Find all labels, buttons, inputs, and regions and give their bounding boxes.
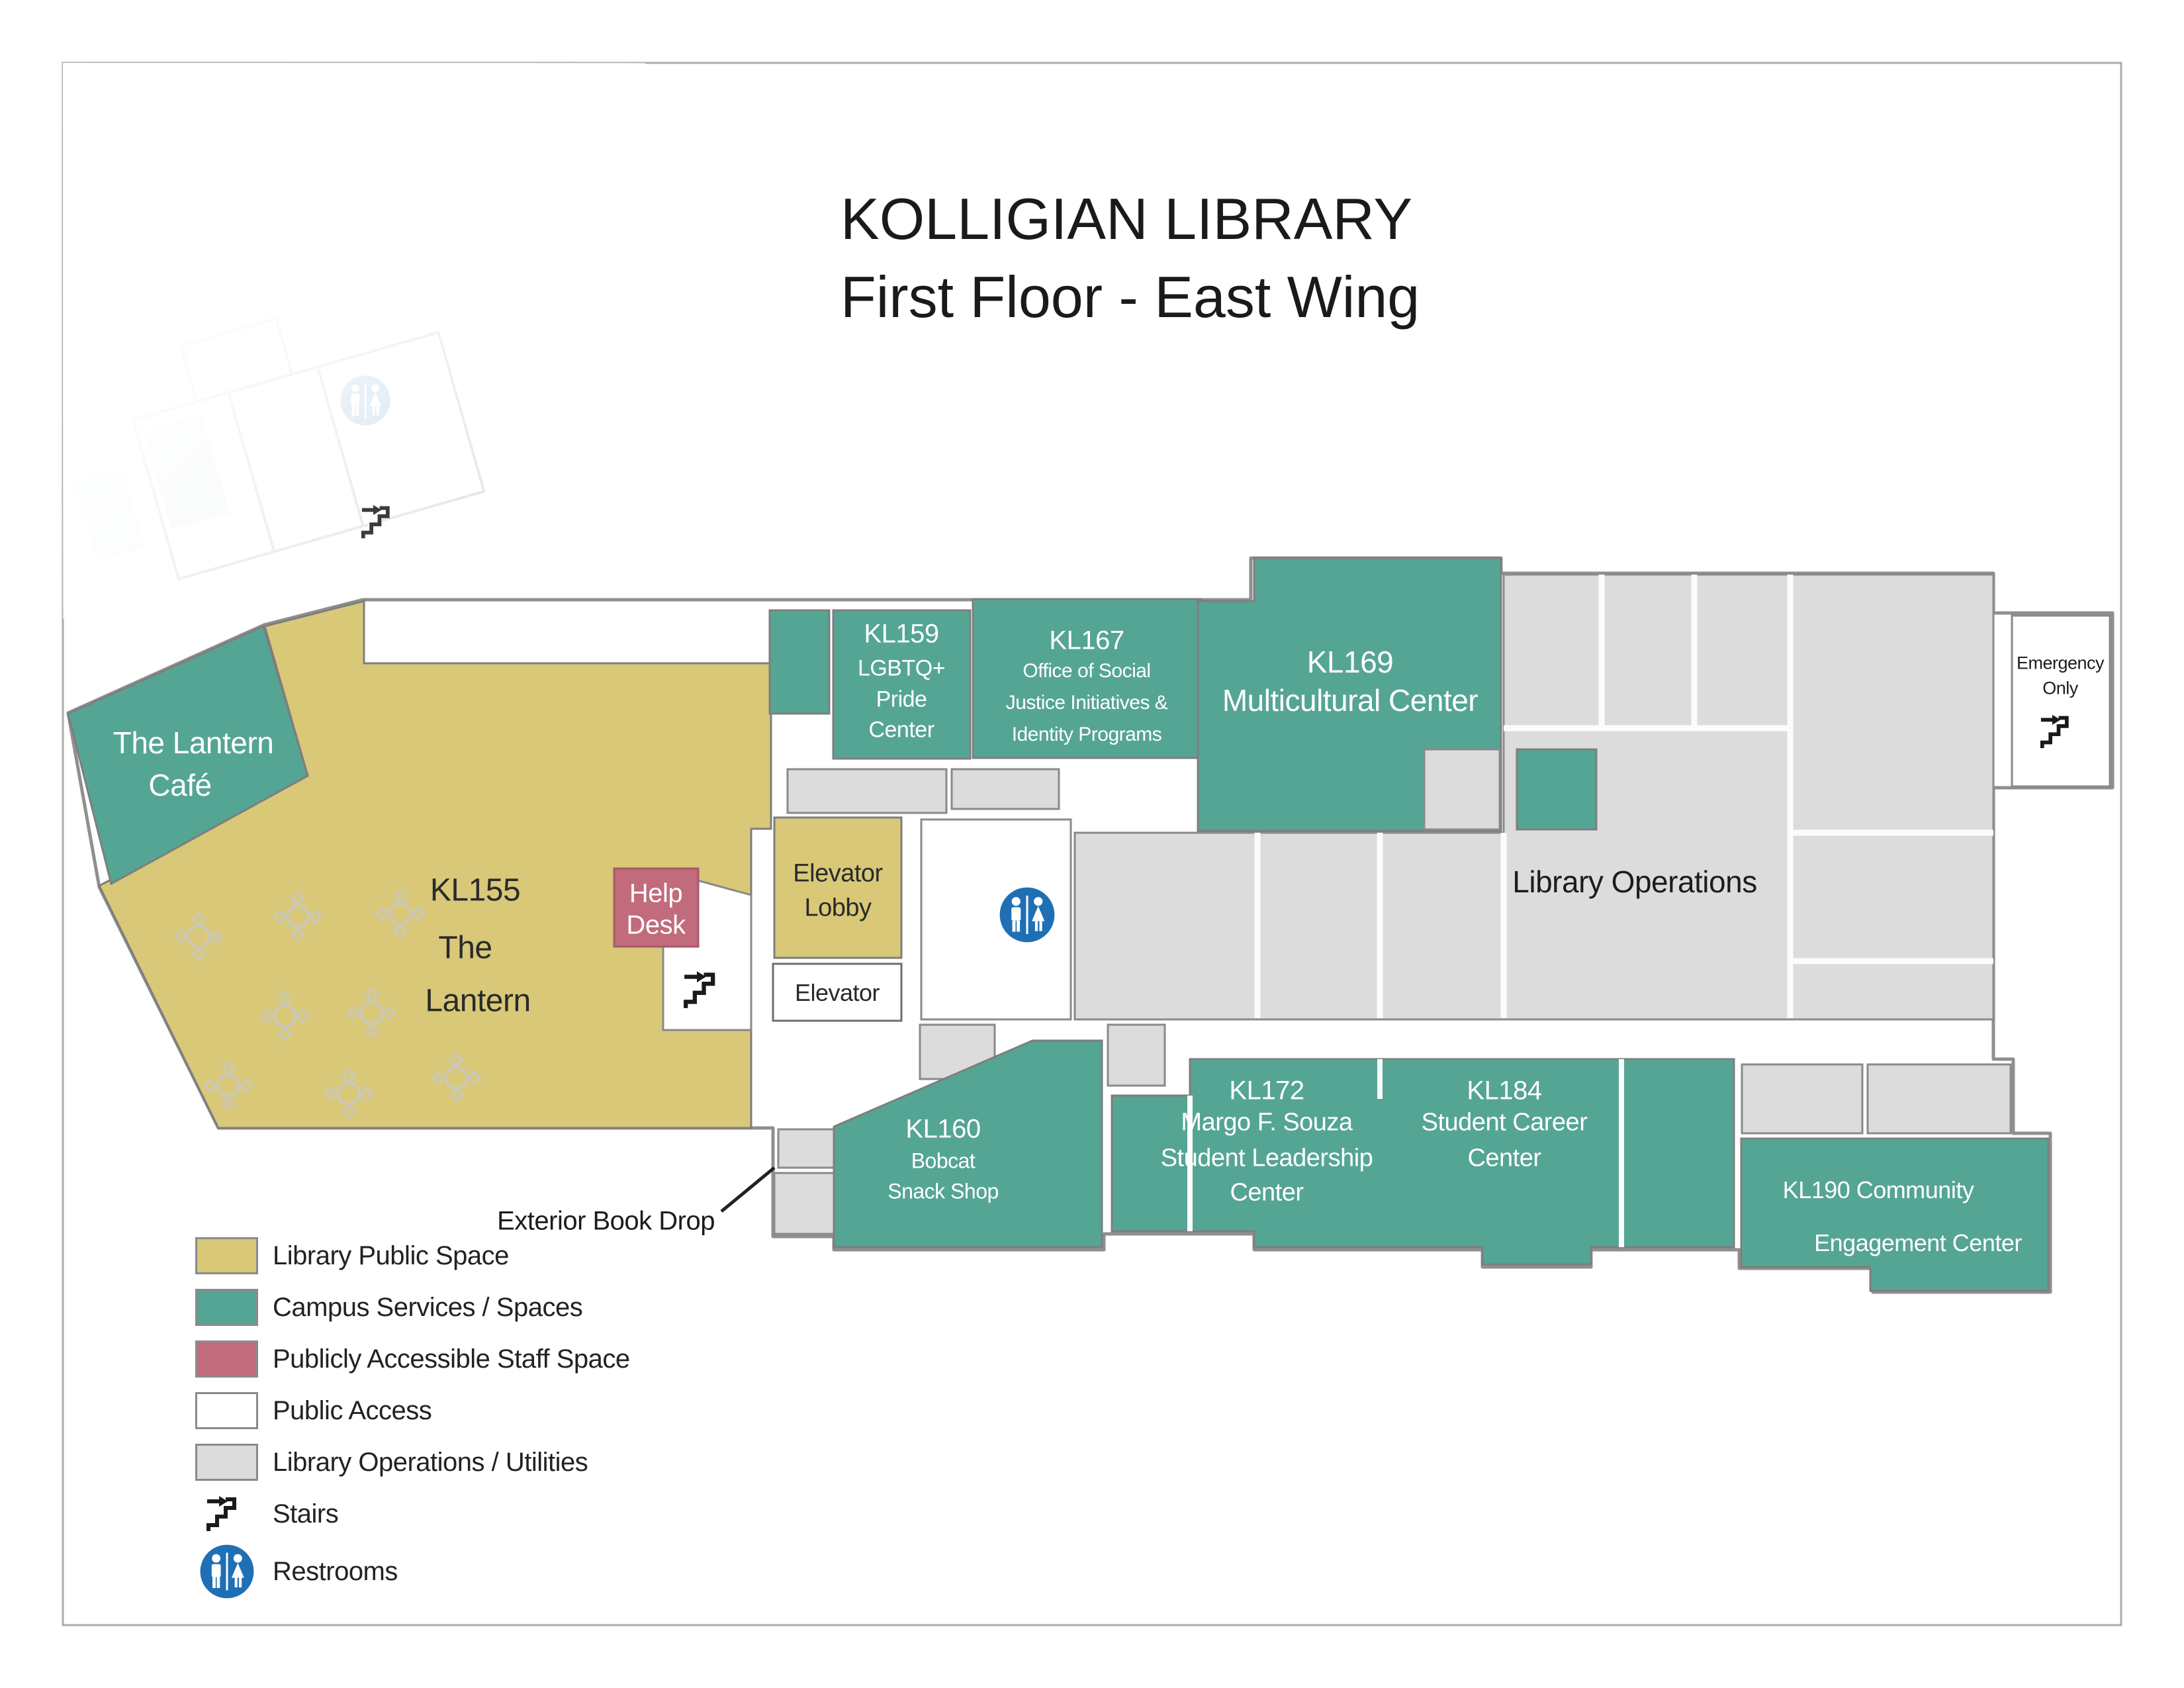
restrooms-icon: [1000, 888, 1055, 943]
legend-item-restrooms: Restrooms: [195, 1540, 630, 1603]
legend-swatch-gray: [195, 1444, 258, 1481]
room-small-teal-shape: [1517, 749, 1596, 829]
legend: Library Public Space Campus Services / S…: [195, 1230, 630, 1603]
room-help-desk-shape: [614, 868, 698, 947]
ghost-fade-overlay: [63, 63, 645, 619]
room-emergency-shape: [2012, 616, 2110, 786]
book-drop-leader-line: [721, 1168, 774, 1211]
restrooms-icon: [199, 1543, 255, 1600]
legend-item-staff-space: Publicly Accessible Staff Space: [195, 1333, 630, 1385]
legend-label: Restrooms: [273, 1557, 398, 1587]
legend-item-stairs: Stairs: [195, 1488, 630, 1540]
room-elevator-shape: [773, 964, 901, 1021]
legend-swatch-white: [195, 1392, 258, 1429]
legend-label: Stairs: [273, 1499, 338, 1529]
legend-swatch-red: [195, 1340, 258, 1378]
legend-label: Campus Services / Spaces: [273, 1293, 582, 1323]
legend-item-public-access: Public Access: [195, 1385, 630, 1436]
room-elevator-lobby-shape: [774, 818, 901, 958]
room-kl159-shape: [833, 610, 970, 759]
legend-swatch-teal: [195, 1289, 258, 1326]
floor-plan-page: KOLLIGIAN LIBRARY First Floor - East Win…: [0, 0, 2184, 1688]
legend-label: Library Public Space: [273, 1241, 509, 1271]
room-kl190-shape: [1741, 1139, 2048, 1291]
legend-swatch-yellow: [195, 1237, 258, 1274]
utility-room: [1424, 749, 1500, 829]
room-kl167-shape: [973, 599, 1201, 758]
legend-item-operations-utilities: Library Operations / Utilities: [195, 1436, 630, 1488]
room-small-teal-shape: [770, 610, 829, 714]
legend-label: Public Access: [273, 1396, 432, 1426]
legend-item-library-public-space: Library Public Space: [195, 1230, 630, 1282]
stairs-icon: [206, 1493, 248, 1535]
legend-item-campus-services: Campus Services / Spaces: [195, 1282, 630, 1333]
legend-label: Library Operations / Utilities: [273, 1448, 588, 1477]
legend-label: Publicly Accessible Staff Space: [273, 1344, 630, 1374]
